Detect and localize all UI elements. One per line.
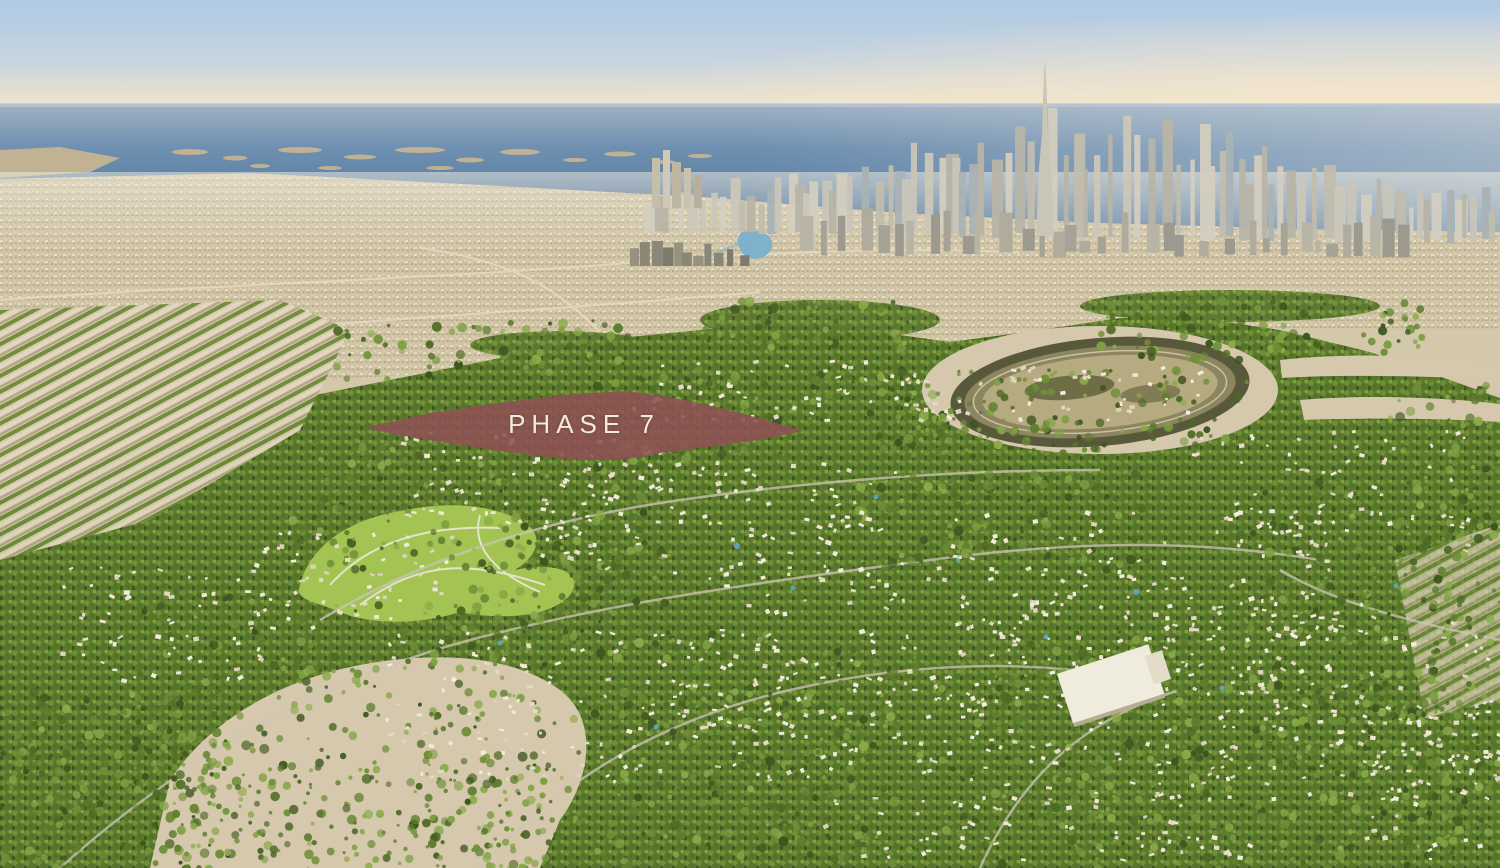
- tree: [176, 780, 186, 790]
- tree: [1468, 634, 1473, 639]
- tree: [607, 331, 616, 340]
- tree: [499, 819, 503, 823]
- tree: [1113, 345, 1117, 349]
- tree: [969, 370, 974, 375]
- tree: [561, 650, 565, 654]
- tree: [1463, 745, 1470, 752]
- tree: [304, 850, 314, 860]
- tree: [942, 544, 951, 553]
- villa: [864, 360, 869, 365]
- tree: [156, 616, 159, 619]
- villa: [914, 647, 917, 650]
- tree: [1157, 742, 1166, 751]
- tree: [179, 861, 183, 865]
- tree: [955, 501, 962, 508]
- tree: [830, 423, 834, 427]
- villa: [1024, 616, 1029, 621]
- villa: [1456, 754, 1459, 757]
- tree: [1435, 705, 1439, 709]
- tree: [1419, 800, 1426, 807]
- tree: [249, 598, 255, 604]
- tree: [968, 475, 975, 482]
- tree: [822, 775, 826, 779]
- tree: [141, 608, 147, 614]
- tower: [1147, 224, 1160, 253]
- villa: [1165, 398, 1168, 400]
- tree: [599, 852, 607, 860]
- tree: [887, 558, 897, 568]
- tree: [152, 707, 159, 714]
- villa: [1411, 642, 1417, 647]
- tree: [304, 833, 312, 841]
- tree: [836, 702, 841, 707]
- midrise-block: [704, 244, 711, 266]
- tree: [1449, 836, 1457, 844]
- villa: [383, 596, 387, 600]
- tree: [283, 782, 291, 790]
- tree: [372, 856, 379, 863]
- tree: [1096, 419, 1105, 428]
- tree: [1442, 776, 1452, 786]
- tree: [826, 834, 830, 838]
- tree: [1307, 625, 1314, 632]
- tree: [1314, 741, 1317, 744]
- tree: [545, 474, 550, 479]
- tree: [1440, 602, 1444, 606]
- tree: [1203, 379, 1209, 385]
- tree: [522, 325, 530, 333]
- villa: [1486, 710, 1491, 713]
- tree: [1335, 784, 1344, 793]
- tree: [755, 346, 760, 351]
- tree: [191, 844, 196, 849]
- tree: [632, 598, 640, 606]
- tower: [711, 193, 718, 229]
- tree: [540, 558, 549, 567]
- tree: [350, 668, 355, 673]
- tree: [1022, 437, 1031, 446]
- tree: [1380, 515, 1386, 521]
- villa: [1093, 805, 1098, 810]
- tree: [536, 479, 542, 485]
- tree: [213, 673, 219, 679]
- tree: [768, 344, 775, 351]
- tree: [1053, 371, 1057, 375]
- tree: [1203, 751, 1209, 757]
- tower: [739, 202, 745, 232]
- tree: [221, 766, 226, 771]
- tree: [1427, 377, 1433, 383]
- tree: [1296, 754, 1302, 760]
- tower: [1226, 132, 1234, 236]
- tree: [505, 811, 509, 815]
- tree: [1449, 638, 1457, 646]
- tree: [647, 846, 651, 850]
- tower: [1281, 223, 1288, 255]
- villa: [707, 722, 712, 727]
- tree: [1257, 813, 1266, 822]
- tower: [1064, 155, 1069, 236]
- tree: [1097, 341, 1106, 350]
- tree: [911, 780, 921, 790]
- tree: [1051, 468, 1055, 472]
- tree: [1435, 759, 1438, 762]
- tree: [348, 353, 351, 356]
- tree: [747, 786, 754, 793]
- tree: [854, 831, 862, 839]
- villa: [886, 701, 891, 704]
- tree: [1190, 751, 1196, 757]
- tree: [1190, 353, 1200, 363]
- villa: [1193, 628, 1199, 631]
- tree: [1109, 314, 1115, 320]
- tree: [1181, 750, 1191, 760]
- tree: [540, 816, 544, 820]
- tree: [248, 785, 251, 788]
- tree: [776, 697, 782, 703]
- tree: [641, 832, 645, 836]
- tree: [191, 680, 194, 683]
- tree: [145, 847, 152, 854]
- tree: [666, 630, 671, 635]
- tree: [1465, 476, 1468, 479]
- tree: [573, 816, 578, 821]
- tree: [430, 649, 440, 659]
- tree: [966, 501, 969, 504]
- tree: [1475, 739, 1480, 744]
- villa: [1392, 447, 1396, 451]
- tree: [473, 844, 480, 851]
- tree: [211, 711, 217, 717]
- villa: [842, 743, 847, 746]
- tree: [1203, 853, 1213, 863]
- tree: [1436, 652, 1440, 656]
- tree: [822, 679, 825, 682]
- villa: [476, 731, 480, 735]
- tree: [1082, 447, 1087, 452]
- tree: [827, 303, 832, 308]
- sunset-glow: [600, 0, 1500, 112]
- tree: [891, 300, 896, 305]
- tree: [580, 629, 584, 633]
- tree: [212, 827, 220, 835]
- tree: [877, 483, 887, 493]
- tower: [1200, 124, 1211, 240]
- tree: [1404, 862, 1411, 868]
- villa: [1384, 637, 1387, 641]
- tree: [390, 447, 396, 453]
- villa: [907, 669, 913, 674]
- tree: [210, 793, 216, 799]
- tree: [938, 413, 947, 422]
- tree: [1175, 697, 1184, 706]
- tree: [941, 450, 946, 455]
- tree: [886, 540, 892, 546]
- tree: [1423, 486, 1429, 492]
- villa: [1311, 593, 1314, 595]
- green-community: [0, 290, 1500, 868]
- tree: [358, 768, 362, 772]
- tree: [519, 646, 523, 650]
- tree: [1318, 697, 1326, 705]
- tree: [43, 707, 53, 717]
- tree: [142, 830, 147, 835]
- tree: [772, 863, 775, 866]
- tree: [961, 426, 969, 434]
- midrise-block: [727, 249, 733, 266]
- tree: [529, 358, 537, 366]
- tree: [477, 826, 481, 830]
- tree: [679, 700, 687, 708]
- tree: [1465, 414, 1474, 423]
- tree: [766, 823, 770, 827]
- tree: [1446, 701, 1450, 705]
- tree: [1075, 420, 1081, 426]
- tree: [1191, 399, 1196, 404]
- tree: [1230, 834, 1237, 841]
- villa: [774, 649, 780, 653]
- tower: [1108, 134, 1112, 236]
- tree: [869, 807, 875, 813]
- tree: [306, 791, 310, 795]
- tree: [487, 811, 495, 819]
- tree: [308, 643, 314, 649]
- tree: [778, 451, 782, 455]
- villa: [1332, 691, 1335, 694]
- tree: [1040, 389, 1046, 395]
- villa: [994, 699, 998, 703]
- tree: [1199, 670, 1205, 676]
- tree: [1449, 850, 1454, 855]
- tree: [1030, 470, 1039, 479]
- tree: [767, 413, 774, 420]
- tree: [1473, 487, 1476, 490]
- tree: [1186, 324, 1196, 334]
- villa: [1440, 743, 1443, 746]
- tree: [747, 732, 754, 739]
- tree: [375, 601, 383, 609]
- tree: [1146, 711, 1151, 716]
- tree: [250, 747, 256, 753]
- tree: [360, 510, 367, 517]
- tree: [844, 783, 849, 788]
- tree: [309, 783, 312, 786]
- tree: [95, 729, 105, 739]
- villa: [693, 684, 698, 687]
- tree: [604, 741, 612, 749]
- tree: [1128, 756, 1135, 763]
- tree: [1315, 689, 1321, 695]
- tree: [256, 725, 263, 732]
- tree: [1406, 847, 1410, 851]
- villa: [478, 456, 482, 460]
- tree: [862, 331, 866, 335]
- tree: [1305, 783, 1313, 791]
- tree: [771, 703, 779, 711]
- tree: [595, 510, 605, 520]
- tree: [475, 325, 482, 332]
- tree: [259, 773, 268, 782]
- tree: [172, 758, 177, 763]
- tree: [170, 746, 179, 755]
- villa: [1401, 750, 1404, 752]
- tree: [924, 482, 933, 491]
- tree: [534, 514, 537, 517]
- tower: [944, 211, 951, 252]
- tree: [719, 651, 728, 660]
- tree: [1092, 823, 1095, 826]
- tree: [1365, 693, 1371, 699]
- tree: [957, 738, 962, 743]
- tree: [993, 638, 996, 641]
- villa: [124, 590, 130, 594]
- tree: [875, 835, 879, 839]
- tree: [822, 852, 827, 857]
- tree: [1111, 842, 1114, 845]
- tree: [1015, 715, 1023, 723]
- tree: [1097, 809, 1101, 813]
- tree: [1225, 785, 1232, 792]
- tree: [1445, 581, 1453, 589]
- tree: [673, 852, 679, 858]
- tree: [396, 810, 402, 816]
- tree: [248, 821, 252, 825]
- villa: [748, 521, 751, 524]
- tree: [1086, 861, 1090, 865]
- tree: [199, 695, 203, 699]
- tree: [448, 625, 454, 631]
- tower: [1424, 199, 1430, 242]
- tree: [1324, 759, 1329, 764]
- villa: [993, 630, 997, 634]
- tree: [478, 587, 484, 593]
- tree: [1441, 789, 1445, 793]
- tree: [698, 799, 706, 807]
- tree: [1242, 478, 1247, 483]
- tree: [1418, 544, 1428, 554]
- tree: [1235, 356, 1243, 364]
- tree: [261, 856, 268, 863]
- villa: [1196, 837, 1199, 840]
- tree: [843, 733, 850, 740]
- tree: [560, 555, 567, 562]
- tree: [1046, 418, 1056, 428]
- tree: [900, 498, 905, 503]
- tree: [324, 694, 333, 703]
- tree: [62, 704, 71, 713]
- tree: [377, 462, 385, 470]
- villa: [588, 544, 591, 548]
- tree: [1080, 536, 1083, 539]
- tree: [1164, 380, 1168, 384]
- tree: [779, 315, 784, 320]
- tree: [373, 685, 376, 688]
- tree: [1254, 694, 1259, 699]
- tree: [765, 319, 772, 326]
- tree: [593, 350, 598, 355]
- tree: [1366, 779, 1370, 783]
- tree: [988, 820, 997, 829]
- tree: [427, 541, 433, 547]
- tree: [534, 715, 541, 722]
- tree: [648, 801, 655, 808]
- tree: [399, 468, 404, 473]
- tree: [360, 486, 370, 496]
- tree: [1263, 594, 1268, 599]
- villa: [1254, 607, 1259, 610]
- tree: [0, 751, 6, 757]
- tree: [1266, 578, 1275, 587]
- tree: [1134, 810, 1140, 816]
- tree: [425, 794, 433, 802]
- tree: [715, 781, 721, 787]
- tree: [631, 807, 640, 816]
- tree: [416, 377, 419, 380]
- tree: [269, 779, 276, 786]
- tower: [974, 212, 980, 255]
- tree: [1294, 544, 1297, 547]
- tower: [1199, 241, 1209, 256]
- tree: [1457, 603, 1462, 608]
- tree: [1029, 396, 1034, 401]
- tree: [346, 474, 354, 482]
- tree: [1348, 829, 1353, 834]
- tree: [478, 559, 486, 567]
- villa: [1250, 508, 1253, 510]
- tree: [880, 445, 888, 453]
- tower: [1383, 219, 1395, 257]
- tree: [1028, 660, 1034, 666]
- tree: [1172, 380, 1178, 386]
- tree: [1313, 340, 1321, 348]
- tree: [493, 662, 497, 666]
- tree: [160, 744, 167, 751]
- tree: [1400, 388, 1405, 393]
- tree: [768, 692, 773, 697]
- tree: [1109, 369, 1113, 373]
- tree: [598, 620, 601, 623]
- tree: [1329, 298, 1335, 304]
- tree: [1420, 472, 1423, 475]
- tree: [159, 761, 165, 767]
- tree: [312, 840, 317, 845]
- tree: [174, 846, 184, 856]
- tree: [1009, 429, 1016, 436]
- tree: [348, 776, 352, 780]
- tree: [1015, 788, 1019, 792]
- tree: [1486, 638, 1494, 646]
- tree: [559, 593, 566, 600]
- villa: [724, 584, 730, 587]
- tree: [1409, 472, 1412, 475]
- tree: [542, 662, 548, 668]
- tree: [1113, 497, 1118, 502]
- tree: [1059, 822, 1066, 829]
- tree: [652, 640, 659, 647]
- tree: [1239, 346, 1243, 350]
- tree: [1402, 427, 1405, 430]
- tree: [41, 854, 48, 861]
- tree: [582, 818, 586, 822]
- tree: [757, 831, 766, 840]
- tree: [437, 855, 443, 861]
- tree: [453, 769, 458, 774]
- tree: [1046, 812, 1054, 820]
- tree: [395, 491, 398, 494]
- tree: [1467, 625, 1472, 630]
- midrise-block: [714, 253, 724, 266]
- villa: [1076, 635, 1081, 640]
